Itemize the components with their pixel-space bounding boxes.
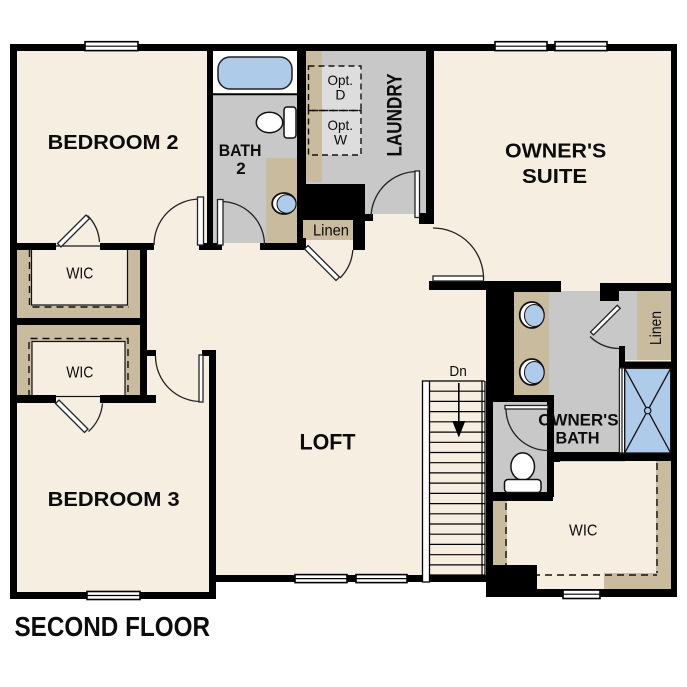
svg-text:Dn: Dn bbox=[449, 364, 466, 380]
svg-text:WIC: WIC bbox=[66, 364, 93, 381]
svg-text:BATH: BATH bbox=[556, 429, 600, 448]
svg-text:LOFT: LOFT bbox=[300, 430, 356, 455]
svg-text:SECOND FLOOR: SECOND FLOOR bbox=[15, 611, 211, 642]
svg-text:2: 2 bbox=[236, 159, 245, 178]
svg-text:SUITE: SUITE bbox=[522, 166, 587, 188]
svg-text:BATH: BATH bbox=[219, 141, 262, 160]
svg-text:Linen: Linen bbox=[648, 311, 665, 345]
svg-text:LAUNDRY: LAUNDRY bbox=[384, 74, 407, 157]
svg-text:BEDROOM 2: BEDROOM 2 bbox=[48, 132, 179, 154]
svg-text:WIC: WIC bbox=[66, 266, 93, 283]
svg-text:D: D bbox=[335, 87, 345, 103]
svg-text:OWNER'S: OWNER'S bbox=[505, 141, 606, 163]
svg-text:WIC: WIC bbox=[569, 523, 598, 540]
svg-text:Linen: Linen bbox=[313, 223, 349, 240]
svg-text:W: W bbox=[334, 131, 348, 147]
svg-text:OWNER'S: OWNER'S bbox=[538, 411, 618, 430]
svg-text:BEDROOM 3: BEDROOM 3 bbox=[48, 489, 180, 511]
